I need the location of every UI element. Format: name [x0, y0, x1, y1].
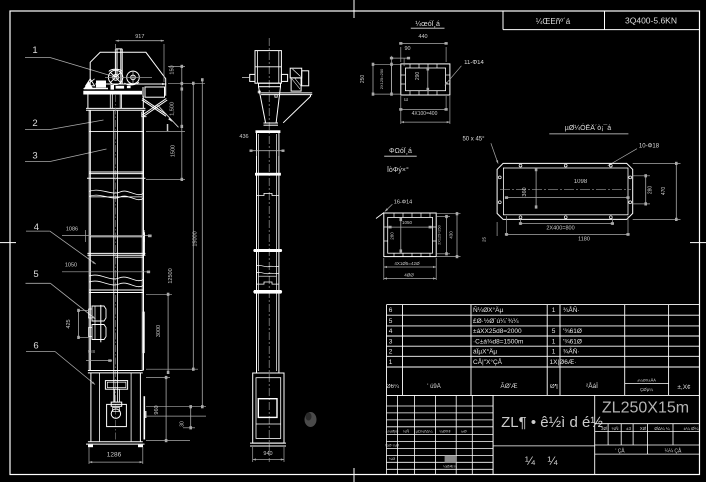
svg-text:4ØØ: 4ØØ [404, 273, 414, 278]
svg-text:12500: 12500 [168, 268, 174, 283]
svg-text:5: 5 [552, 328, 556, 335]
svg-text:940: 940 [263, 451, 272, 457]
svg-text:¼¼ ÇÅ: ¼¼ ÇÅ [665, 448, 682, 455]
svg-text:425: 425 [66, 319, 72, 328]
svg-text:250: 250 [360, 75, 366, 84]
svg-text:²ÅáÏ: ²ÅáÏ [586, 381, 598, 390]
svg-text:¼Ø: ¼Ø [389, 456, 395, 461]
svg-text:10-Φ18: 10-Φ18 [639, 144, 660, 150]
svg-text:·C±á¾d8=1500m: ·C±á¾d8=1500m [473, 338, 523, 345]
svg-text:' ú9Å: ' ú9Å [427, 383, 441, 390]
svg-text:'¾61Ø: '¾61Ø [563, 338, 582, 345]
svg-text:£Ø·½Ø´ú¼´¾¼: £Ø·½Ø´ú¼´¾¼ [473, 317, 519, 325]
svg-text:ZL250X15m: ZL250X15m [602, 400, 689, 417]
svg-text:µΩ¼ñΔ¼: µΩ¼ñΔ¼ [416, 429, 434, 434]
svg-text:1500: 1500 [171, 145, 177, 157]
svg-text:ÇØµ¼: ÇØµ¼ [640, 387, 653, 392]
svg-text:1098: 1098 [574, 179, 588, 185]
svg-text:2: 2 [389, 348, 393, 355]
svg-text:30: 30 [180, 421, 186, 427]
svg-text:4X100=400: 4X100=400 [412, 111, 438, 117]
svg-text:' ÇÅ: ' ÇÅ [615, 448, 625, 455]
svg-text:ØΔ¼ ¼: ØΔ¼ ¼ [654, 426, 670, 431]
svg-text:3Ø: 3Ø [601, 426, 608, 431]
svg-text:±,X¢: ±,X¢ [677, 384, 691, 391]
svg-text:ΦΩóÏ¸á: ΦΩóÏ¸á [389, 147, 412, 155]
svg-text:1: 1 [552, 338, 556, 345]
svg-text:50 x 45°: 50 x 45° [462, 137, 485, 143]
svg-text:Ø6¼: Ø6¼ [386, 384, 400, 390]
svg-text:¼: ¼ [525, 454, 536, 468]
svg-text:±¼ØX±ÅÁ: ±¼ØX±ÅÁ [637, 378, 656, 383]
svg-text:1: 1 [552, 348, 556, 355]
svg-text:4: 4 [389, 328, 393, 335]
svg-text:4X1Ø5=42Ø: 4X1Ø5=42Ø [394, 261, 420, 266]
svg-text:988: 988 [88, 349, 96, 354]
svg-text:150: 150 [170, 65, 176, 74]
svg-text:1: 1 [389, 359, 393, 366]
svg-text:6: 6 [33, 341, 38, 352]
svg-text:25: 25 [482, 237, 487, 243]
svg-text:¼ØX¢: ¼ØX¢ [439, 429, 450, 434]
svg-text:Ñ¼ØX°Äµ: Ñ¼ØX°Äµ [473, 305, 503, 314]
svg-text:430: 430 [449, 231, 454, 239]
svg-text:280: 280 [390, 232, 395, 240]
svg-text:XØ: XØ [640, 426, 647, 431]
svg-text:1X|Ø6Æ·: 1X|Ø6Æ· [550, 359, 577, 366]
svg-text:90: 90 [404, 46, 410, 52]
svg-text:1180: 1180 [578, 237, 590, 243]
svg-text:±¼Ø|Ø: ±¼Ø|Ø [386, 429, 399, 434]
svg-text:'¾61Ø: '¾61Ø [563, 328, 582, 335]
svg-text:11-Φ14: 11-Φ14 [464, 60, 484, 66]
svg-text:470: 470 [661, 187, 667, 196]
svg-text:¼Ñ: ¼Ñ [403, 429, 409, 434]
svg-text:1086: 1086 [66, 227, 78, 233]
svg-text:1: 1 [552, 307, 556, 314]
svg-text:5: 5 [389, 318, 393, 325]
svg-text:16-Φ14: 16-Φ14 [394, 200, 412, 206]
svg-text:360: 360 [522, 187, 528, 196]
svg-text:Ø¶: Ø¶ [550, 384, 558, 390]
svg-text:290: 290 [415, 72, 421, 81]
svg-text:2X400=800: 2X400=800 [546, 226, 574, 232]
svg-text:¼œóÏ¸á: ¼œóÏ¸á [415, 20, 440, 28]
svg-text:2: 2 [32, 118, 37, 129]
svg-text:1286: 1286 [107, 452, 122, 459]
svg-text:1050: 1050 [65, 263, 77, 269]
svg-text:917: 917 [135, 34, 144, 40]
svg-text:Ш: Ш [404, 97, 408, 102]
svg-text:¼ØÆ¼: ¼ØÆ¼ [443, 464, 457, 469]
svg-text:15000: 15000 [193, 231, 199, 246]
svg-text:CÅ|"X°ÇÅ: CÅ|"X°ÇÅ [473, 357, 503, 366]
svg-text:ÃØ'Æ: ÃØ'Æ [500, 381, 518, 390]
svg-text:±3: ±3 [626, 426, 631, 431]
svg-text:¾ÅÑ·: ¾ÅÑ· [563, 346, 580, 355]
svg-text:ZL¶ • ê½ì d é½: ZL¶ • ê½ì d é½ [501, 414, 603, 431]
svg-text:ьØ: ьØ [461, 429, 466, 434]
svg-text:5: 5 [33, 269, 38, 280]
svg-text:I: I [166, 123, 169, 134]
svg-text:áÏµX°Äµ: áÏµX°Äµ [473, 347, 497, 355]
svg-text:¼ŒEñº´á: ¼ŒEñº´á [536, 17, 571, 26]
svg-text:3: 3 [32, 151, 37, 162]
svg-text:6: 6 [389, 307, 393, 314]
svg-text:µØ¼ÓËÄ´ò¡¯á: µØ¼ÓËÄ´ò¡¯á [565, 123, 612, 132]
svg-text:1: 1 [32, 45, 37, 56]
svg-text:1050: 1050 [402, 220, 413, 225]
svg-text:3: 3 [389, 338, 393, 345]
svg-text:¼Ø ¼Ø: ¼Ø ¼Ø [385, 443, 399, 448]
svg-text:436: 436 [239, 134, 248, 140]
svg-text:3000: 3000 [156, 325, 162, 337]
svg-text:280: 280 [648, 186, 654, 195]
svg-text:±¼ Ø¼: ±¼ Ø¼ [684, 426, 699, 431]
svg-text:440: 440 [418, 34, 427, 40]
svg-text:±áXX25d8=2000: ±áXX25d8=2000 [473, 328, 522, 335]
svg-text:2X125=250: 2X125=250 [438, 225, 442, 245]
svg-text:¼: ¼ [547, 454, 558, 468]
svg-text:¾ÅÑ·: ¾ÅÑ· [563, 305, 580, 314]
svg-text:3Q400-5.6KN: 3Q400-5.6KN [625, 16, 677, 26]
svg-text:2X125=250: 2X125=250 [379, 68, 384, 89]
svg-text:¼Ñ: ¼Ñ [611, 425, 618, 431]
svg-text:ÏòΦý×°: ÏòΦý×° [387, 166, 409, 174]
svg-text:1,500: 1,500 [170, 102, 176, 116]
